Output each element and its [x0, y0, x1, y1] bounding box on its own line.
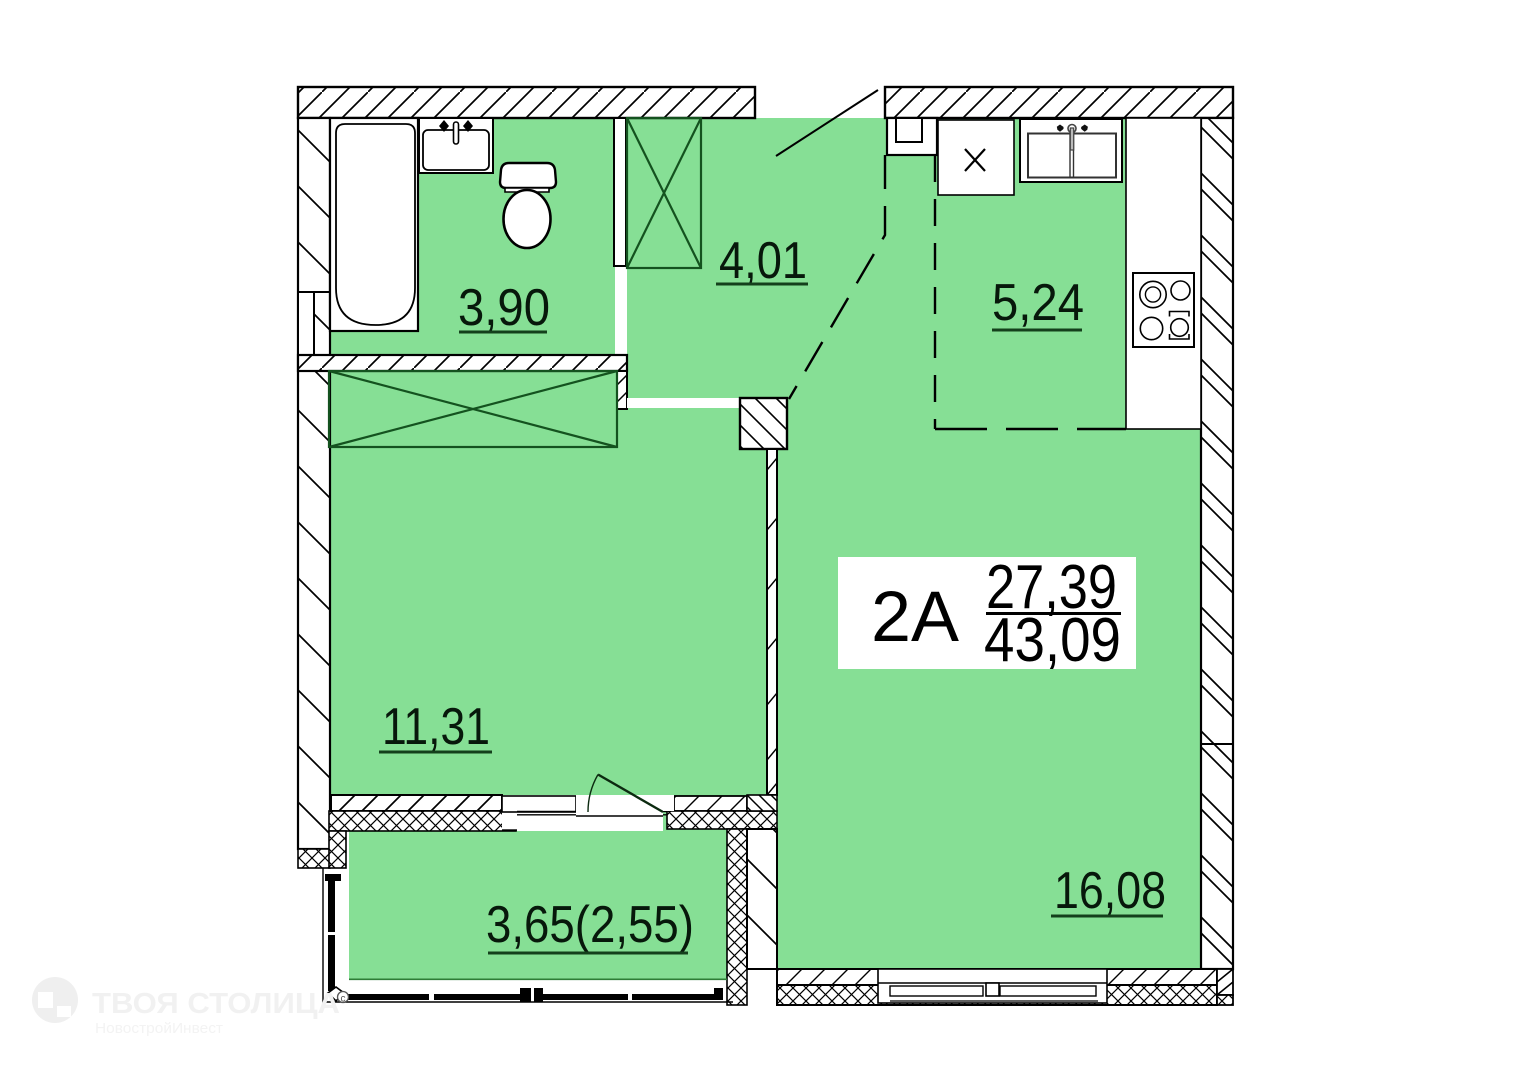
svg-text:c: c [341, 994, 346, 1005]
svg-text:16,08: 16,08 [1054, 862, 1166, 920]
svg-text:5,24: 5,24 [992, 274, 1084, 332]
svg-text:2A: 2A [871, 578, 960, 657]
svg-text:НовостройИнвест: НовостройИнвест [95, 1020, 223, 1037]
svg-text:3,90: 3,90 [458, 279, 550, 337]
svg-text:11,31: 11,31 [382, 698, 490, 756]
svg-text:3,65(2,55): 3,65(2,55) [486, 896, 694, 954]
svg-text:ТВОЯ СТОЛИЦА: ТВОЯ СТОЛИЦА [92, 988, 340, 1020]
svg-text:43,09: 43,09 [984, 606, 1121, 675]
svg-text:4,01: 4,01 [719, 232, 807, 290]
